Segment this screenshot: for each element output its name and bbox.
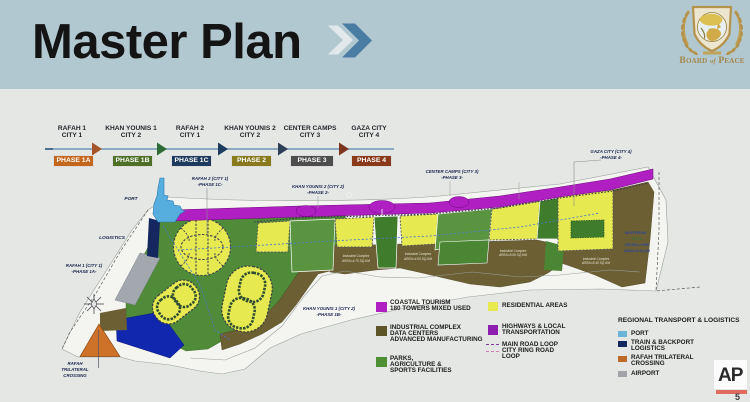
svg-text:Industrial Complex: Industrial Complex: [405, 252, 432, 256]
svg-text:CENTER CAMPS (CITY 3): CENTER CAMPS (CITY 3): [426, 169, 479, 174]
svg-text:-PHASE 2-: -PHASE 2-: [307, 190, 329, 195]
svg-text:Industrial Complex: Industrial Complex: [343, 254, 370, 258]
svg-text:-PHASE 1C-: -PHASE 1C-: [198, 182, 223, 187]
svg-text:CROSSING: CROSSING: [63, 373, 87, 378]
svg-text:AREA=4.05 SQ.KM: AREA=4.05 SQ.KM: [403, 257, 432, 261]
svg-text:-PHASE 1B-: -PHASE 1B-: [317, 312, 342, 317]
svg-text:RAFAH 2 (CITY 1): RAFAH 2 (CITY 1): [192, 176, 229, 181]
svg-text:RAFAH 1 (CITY 1): RAFAH 1 (CITY 1): [66, 263, 103, 268]
svg-text:AREA=8.45 SQ.KM: AREA=8.45 SQ.KM: [581, 261, 610, 265]
svg-text:RAFAH: RAFAH: [67, 361, 83, 366]
svg-text:KHAN YOUNIS 2 (CITY 2): KHAN YOUNIS 2 (CITY 2): [292, 184, 345, 189]
svg-text:PORT: PORT: [124, 196, 138, 202]
svg-text:GAZA CITY (CITY 4): GAZA CITY (CITY 4): [590, 149, 632, 154]
svg-text:LOGISTICS: LOGISTICS: [99, 235, 126, 241]
svg-text:-PHASE 1A-: -PHASE 1A-: [72, 269, 97, 274]
svg-text:CENTRAL PARK: CENTRAL PARK: [625, 243, 651, 247]
svg-text:CITY 4: CITY 4: [632, 237, 642, 241]
svg-text:-PHASE 3-: -PHASE 3-: [441, 175, 463, 180]
svg-text:AREA=8.06 SQ.KM: AREA=8.06 SQ.KM: [498, 253, 527, 257]
svg-text:-PHASE 4-: -PHASE 4-: [600, 155, 622, 160]
svg-text:KHAN YOUNIS 1 (CITY 2): KHAN YOUNIS 1 (CITY 2): [303, 306, 356, 311]
svg-text:MEDITERRAN.: MEDITERRAN.: [625, 231, 647, 235]
svg-text:TRILATERAL: TRILATERAL: [61, 367, 89, 372]
svg-text:AREA=4.75 SQ.KM: AREA=4.75 SQ.KM: [341, 259, 370, 263]
svg-text:AREA=20 SQ.KM: AREA=20 SQ.KM: [624, 249, 650, 253]
